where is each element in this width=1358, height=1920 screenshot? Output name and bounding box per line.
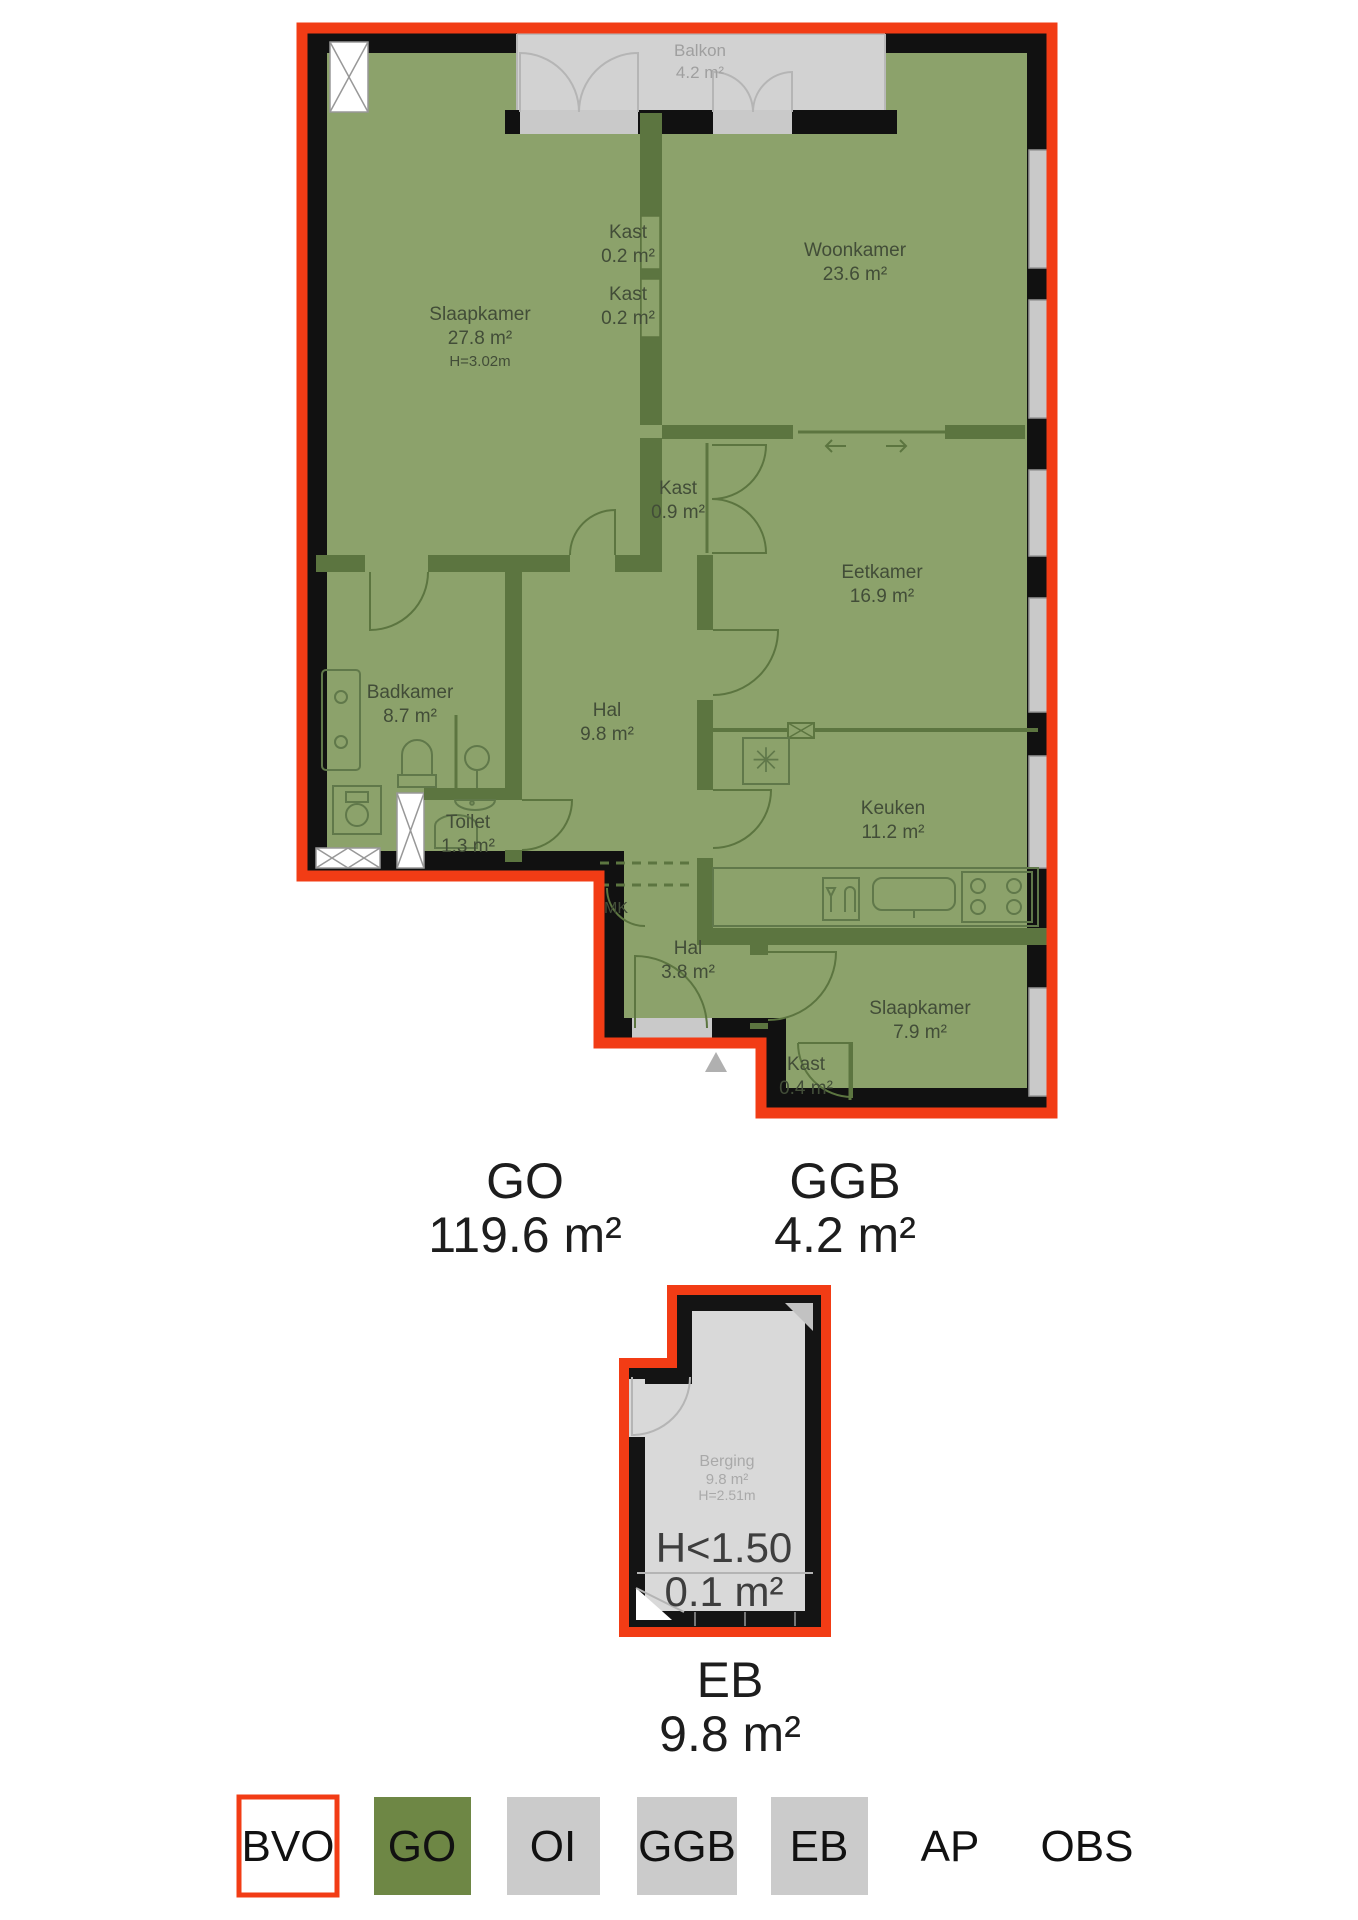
vent-icon: ✳ <box>752 742 781 780</box>
room-label: Hal <box>674 938 703 959</box>
room-label: Woonkamer <box>804 240 907 261</box>
storage-floor-plan: Berging 9.8 m² H=2.51m H<1.50 0.1 m² <box>624 1290 826 1632</box>
legend-item-obs: OBS <box>1041 1822 1134 1871</box>
room-area: 7.9 m² <box>893 1022 947 1043</box>
room-label: Berging <box>699 1453 754 1470</box>
legend-item-ap: AP <box>921 1822 980 1871</box>
total-go-area: 119.6 m² <box>428 1207 622 1263</box>
room-area: 9.8 m² <box>706 1471 749 1488</box>
legend-label: BVO <box>242 1822 335 1871</box>
floorplan-page: ✳ Balkon 4.2 m² Slaapkamer 27.8 m² H=3.0… <box>0 0 1358 1920</box>
legend-label: EB <box>790 1822 849 1871</box>
room-area: 3.8 m² <box>661 962 715 983</box>
legend-label: GO <box>388 1822 456 1871</box>
room-label: Keuken <box>861 798 925 819</box>
room-label: Slaapkamer <box>429 304 531 325</box>
room-label: Kast <box>609 284 648 305</box>
room-label: Kast <box>787 1054 826 1075</box>
room-area: 4.2 m² <box>676 63 725 82</box>
room-label: Slaapkamer <box>869 998 971 1019</box>
room-ceiling: H=2.51m <box>698 1487 755 1503</box>
room-area: 1.3 m² <box>441 836 495 857</box>
legend-item-go: GO <box>374 1797 471 1895</box>
main-floor-plan: ✳ Balkon 4.2 m² Slaapkamer 27.8 m² H=3.0… <box>302 28 1052 1113</box>
legend-item-eb: EB <box>771 1797 868 1895</box>
low-headroom-label: H<1.50 <box>656 1524 793 1571</box>
legend-label: OBS <box>1041 1822 1134 1871</box>
legend-item-bvo: BVO <box>239 1797 337 1895</box>
room-area: 23.6 m² <box>823 264 887 285</box>
total-eb-area: 9.8 m² <box>659 1706 801 1762</box>
room-area: 9.8 m² <box>580 724 634 745</box>
room-area: 0.2 m² <box>601 246 655 267</box>
room-label: Toilet <box>446 812 491 833</box>
total-eb-code: EB <box>697 1652 764 1708</box>
legend-label: AP <box>921 1822 980 1871</box>
floorplan-canvas: ✳ Balkon 4.2 m² Slaapkamer 27.8 m² H=3.0… <box>0 0 1358 1920</box>
room-label: Kast <box>659 478 698 499</box>
room-area: 11.2 m² <box>861 822 924 843</box>
total-ggb-code: GGB <box>789 1153 900 1209</box>
room-area: 0.9 m² <box>651 502 705 523</box>
low-headroom-area: 0.1 m² <box>664 1568 783 1615</box>
legend-item-ggb: GGB <box>637 1797 737 1895</box>
room-label: Badkamer <box>367 682 454 703</box>
room-area: 8.7 m² <box>383 706 437 727</box>
legend-label: GGB <box>638 1822 736 1871</box>
legend: BVO GO OI GGB EB AP OBS <box>239 1797 1133 1895</box>
total-ggb-area: 4.2 m² <box>774 1207 916 1263</box>
total-go-code: GO <box>486 1153 564 1209</box>
room-area: 0.2 m² <box>601 308 655 329</box>
room-label: Balkon <box>674 41 726 60</box>
entrance-triangle-icon <box>705 1052 727 1072</box>
storage-plan-totals: EB 9.8 m² <box>659 1652 801 1762</box>
legend-item-oi: OI <box>507 1797 600 1895</box>
room-label: Kast <box>609 222 648 243</box>
room-label: MK <box>604 900 628 917</box>
room-area: 0.4 m² <box>779 1078 833 1099</box>
legend-label: OI <box>530 1822 576 1871</box>
room-label: Hal <box>593 700 622 721</box>
room-ceiling: H=3.02m <box>449 353 510 370</box>
storage-door-opening <box>628 1379 645 1437</box>
room-area: 27.8 m² <box>448 328 512 349</box>
room-label: Eetkamer <box>841 562 923 583</box>
room-area: 16.9 m² <box>850 586 914 607</box>
main-plan-totals: GO 119.6 m² GGB 4.2 m² <box>428 1153 916 1263</box>
